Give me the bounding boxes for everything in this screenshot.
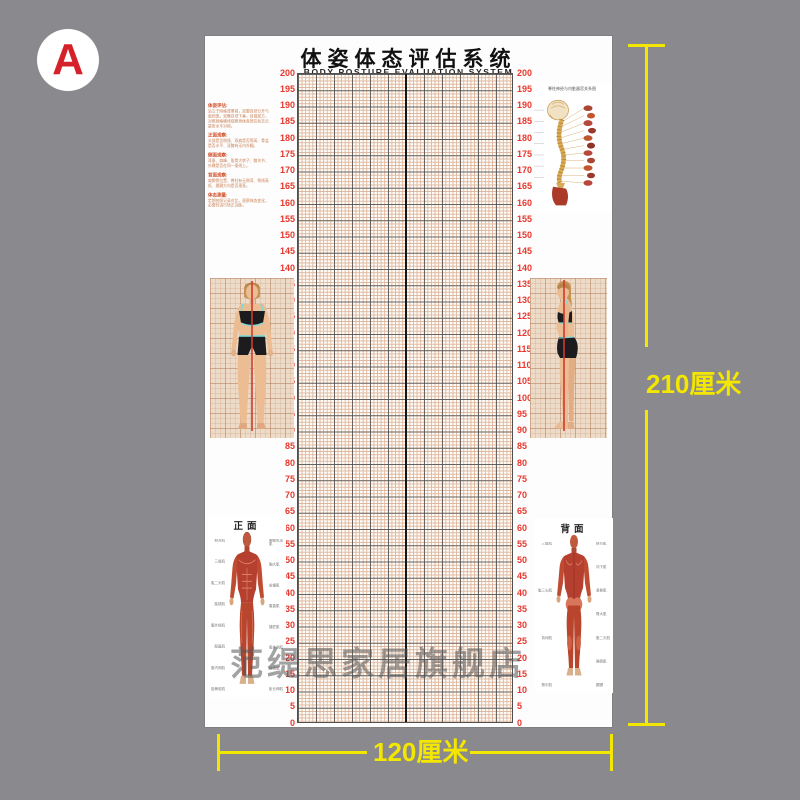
muscle-label: 臀中肌 — [535, 683, 552, 687]
scale-tick-label: 70 — [273, 491, 295, 500]
width-dimension-line-left — [218, 751, 367, 754]
scale-tick-label: 175 — [273, 150, 295, 159]
muscle-label: 胸锁乳突肌 — [269, 539, 286, 546]
scale-tick-label: 5 — [517, 702, 539, 711]
muscle-label: 三角肌 — [535, 542, 552, 546]
info-section-heading: 背面观察: — [208, 171, 270, 178]
woman-side-photo — [530, 278, 607, 438]
muscle-back-figure — [552, 533, 596, 683]
watermark: 范缇思家居旗舰店 — [230, 646, 526, 682]
muscle-label: 腓肠肌 — [596, 660, 613, 664]
height-dimension-label: 210厘米 — [646, 371, 741, 397]
poster: 体姿体态评估系统 BODY POSTURE EVALUATION SYSTEM … — [205, 36, 612, 727]
measurement-grid — [297, 73, 513, 723]
scale-tick-label: 0 — [273, 719, 295, 728]
scale-tick-label: 85 — [517, 442, 539, 451]
scale-tick-label: 140 — [273, 264, 295, 273]
info-section-body: 头部是否侧倾、双肩是否等高、骨盆是否水平、双膝有无内外翻。 — [208, 139, 270, 149]
scale-tick-label: 165 — [273, 182, 295, 191]
scale-tick-label: 155 — [517, 215, 539, 224]
muscle-back-right-labels: 斜方肌冈下肌竖脊肌臀大肌股二头肌腓肠肌跟腱 — [596, 542, 613, 687]
info-text-block: 体姿评估:站立于网格背景前，双脚自然分开与肩同宽，双臂自然下垂，目视前方，对照网… — [208, 102, 270, 242]
info-section-heading: 正面观察: — [208, 132, 270, 139]
scale-tick-label: 180 — [273, 134, 295, 143]
info-section-body: 站立于网格背景前，双脚自然分开与肩同宽，双臂自然下垂，目视前方，对照网格横线观察… — [208, 109, 270, 129]
muscle-label: 腹外斜肌 — [208, 624, 225, 628]
scale-tick-label: 80 — [517, 459, 539, 468]
spine-chart-panel: 脊柱神经与内脏器官关系图 — [532, 83, 612, 213]
info-section-heading: 体态测量: — [208, 191, 270, 198]
info-section-body: 耳垂、肩峰、股骨大转子、膝关节、外踝是否在同一垂线上。 — [208, 159, 270, 169]
info-section-body: 肩胛骨位置、脊柱有无侧弯、臀线高低、跟腱方向是否垂直。 — [208, 178, 270, 188]
scale-tick-label: 200 — [517, 69, 539, 78]
scale-tick-label: 185 — [273, 117, 295, 126]
muscle-label: 背阔肌 — [535, 636, 552, 640]
scale-tick-label: 195 — [273, 85, 295, 94]
scale-tick-label: 70 — [517, 491, 539, 500]
width-dimension-right-cap — [610, 734, 613, 771]
scale-tick-label: 155 — [273, 215, 295, 224]
scale-tick-label: 140 — [517, 264, 539, 273]
muscle-label: 前锯肌 — [269, 584, 286, 588]
muscle-label: 股直肌 — [208, 645, 225, 649]
height-dimension-bottom-cap — [628, 723, 665, 726]
muscle-label: 竖脊肌 — [596, 589, 613, 593]
scale-tick-label: 80 — [273, 459, 295, 468]
scale-tick-label: 75 — [517, 475, 539, 484]
muscle-label: 臀大肌 — [596, 613, 613, 617]
scale-tick-label: 160 — [273, 199, 295, 208]
muscle-label: 腹直肌 — [269, 605, 286, 609]
muscle-label: 肱桡肌 — [208, 603, 225, 607]
muscle-label: 趾长伸肌 — [269, 687, 286, 691]
muscle-label: 斜方肌 — [596, 542, 613, 546]
scale-tick-label: 150 — [517, 231, 539, 240]
muscle-label: 肱二头肌 — [208, 581, 225, 585]
muscle-label: 跟腱 — [596, 683, 613, 687]
scale-tick-label: 145 — [273, 247, 295, 256]
grid-center-line — [405, 74, 408, 722]
spine-chart-title: 脊柱神经与内脏器官关系图 — [532, 86, 612, 92]
woman-front-photo — [210, 278, 294, 438]
scale-tick-label: 150 — [273, 231, 295, 240]
scale-tick-label: 5 — [273, 702, 295, 711]
width-dimension-label: 120厘米 — [373, 739, 468, 765]
info-section-heading: 体姿评估: — [208, 102, 270, 109]
width-dimension-line-right — [470, 751, 611, 754]
info-section-heading: 侧面观察: — [208, 152, 270, 159]
scale-tick-label: 0 — [517, 719, 539, 728]
info-section-body: 定期拍照记录对比，观察体态变化，必要时进行矫正训练。 — [208, 198, 270, 208]
scale-tick-label: 145 — [517, 247, 539, 256]
variant-badge: A — [37, 29, 99, 91]
muscle-back-left-labels: 三角肌肱三头肌背阔肌臀中肌 — [535, 542, 552, 687]
muscle-label: 胫骨前肌 — [208, 687, 225, 691]
badge-letter: A — [52, 38, 84, 82]
muscle-front-left-labels: 斜方肌三角肌肱二头肌肱桡肌腹外斜肌股直肌股内侧肌胫骨前肌 — [208, 539, 225, 691]
muscle-label: 冈下肌 — [596, 566, 613, 570]
spine-diagram — [532, 97, 612, 211]
height-dimension-line-lower — [645, 410, 648, 725]
muscle-label: 股二头肌 — [596, 636, 613, 640]
muscle-label: 斜方肌 — [208, 539, 225, 543]
woman-side-figure — [530, 278, 607, 438]
scale-tick-label: 170 — [273, 166, 295, 175]
muscle-label: 胸大肌 — [269, 563, 286, 567]
muscle-chart-back: 背面 三角肌肱三头肌背阔肌臀中肌 斜方肌冈下肌竖脊肌臀大肌股二头肌腓肠肌跟腱 — [535, 518, 613, 693]
muscle-label: 缝匠肌 — [269, 625, 286, 629]
scale-tick-label: 85 — [273, 442, 295, 451]
muscle-label: 肱三头肌 — [535, 589, 552, 593]
scale-tick-label: 75 — [273, 475, 295, 484]
scale-tick-label: 190 — [273, 101, 295, 110]
woman-front-figure — [210, 278, 294, 438]
muscle-label: 三角肌 — [208, 560, 225, 564]
muscle-label: 股内侧肌 — [208, 666, 225, 670]
scale-tick-label: 200 — [273, 69, 295, 78]
product-image-canvas: { "page": {"background": "#8a898d"}, "ba… — [0, 0, 800, 800]
height-dimension-line-upper — [645, 45, 648, 347]
scale-tick-label: 65 — [517, 507, 539, 516]
